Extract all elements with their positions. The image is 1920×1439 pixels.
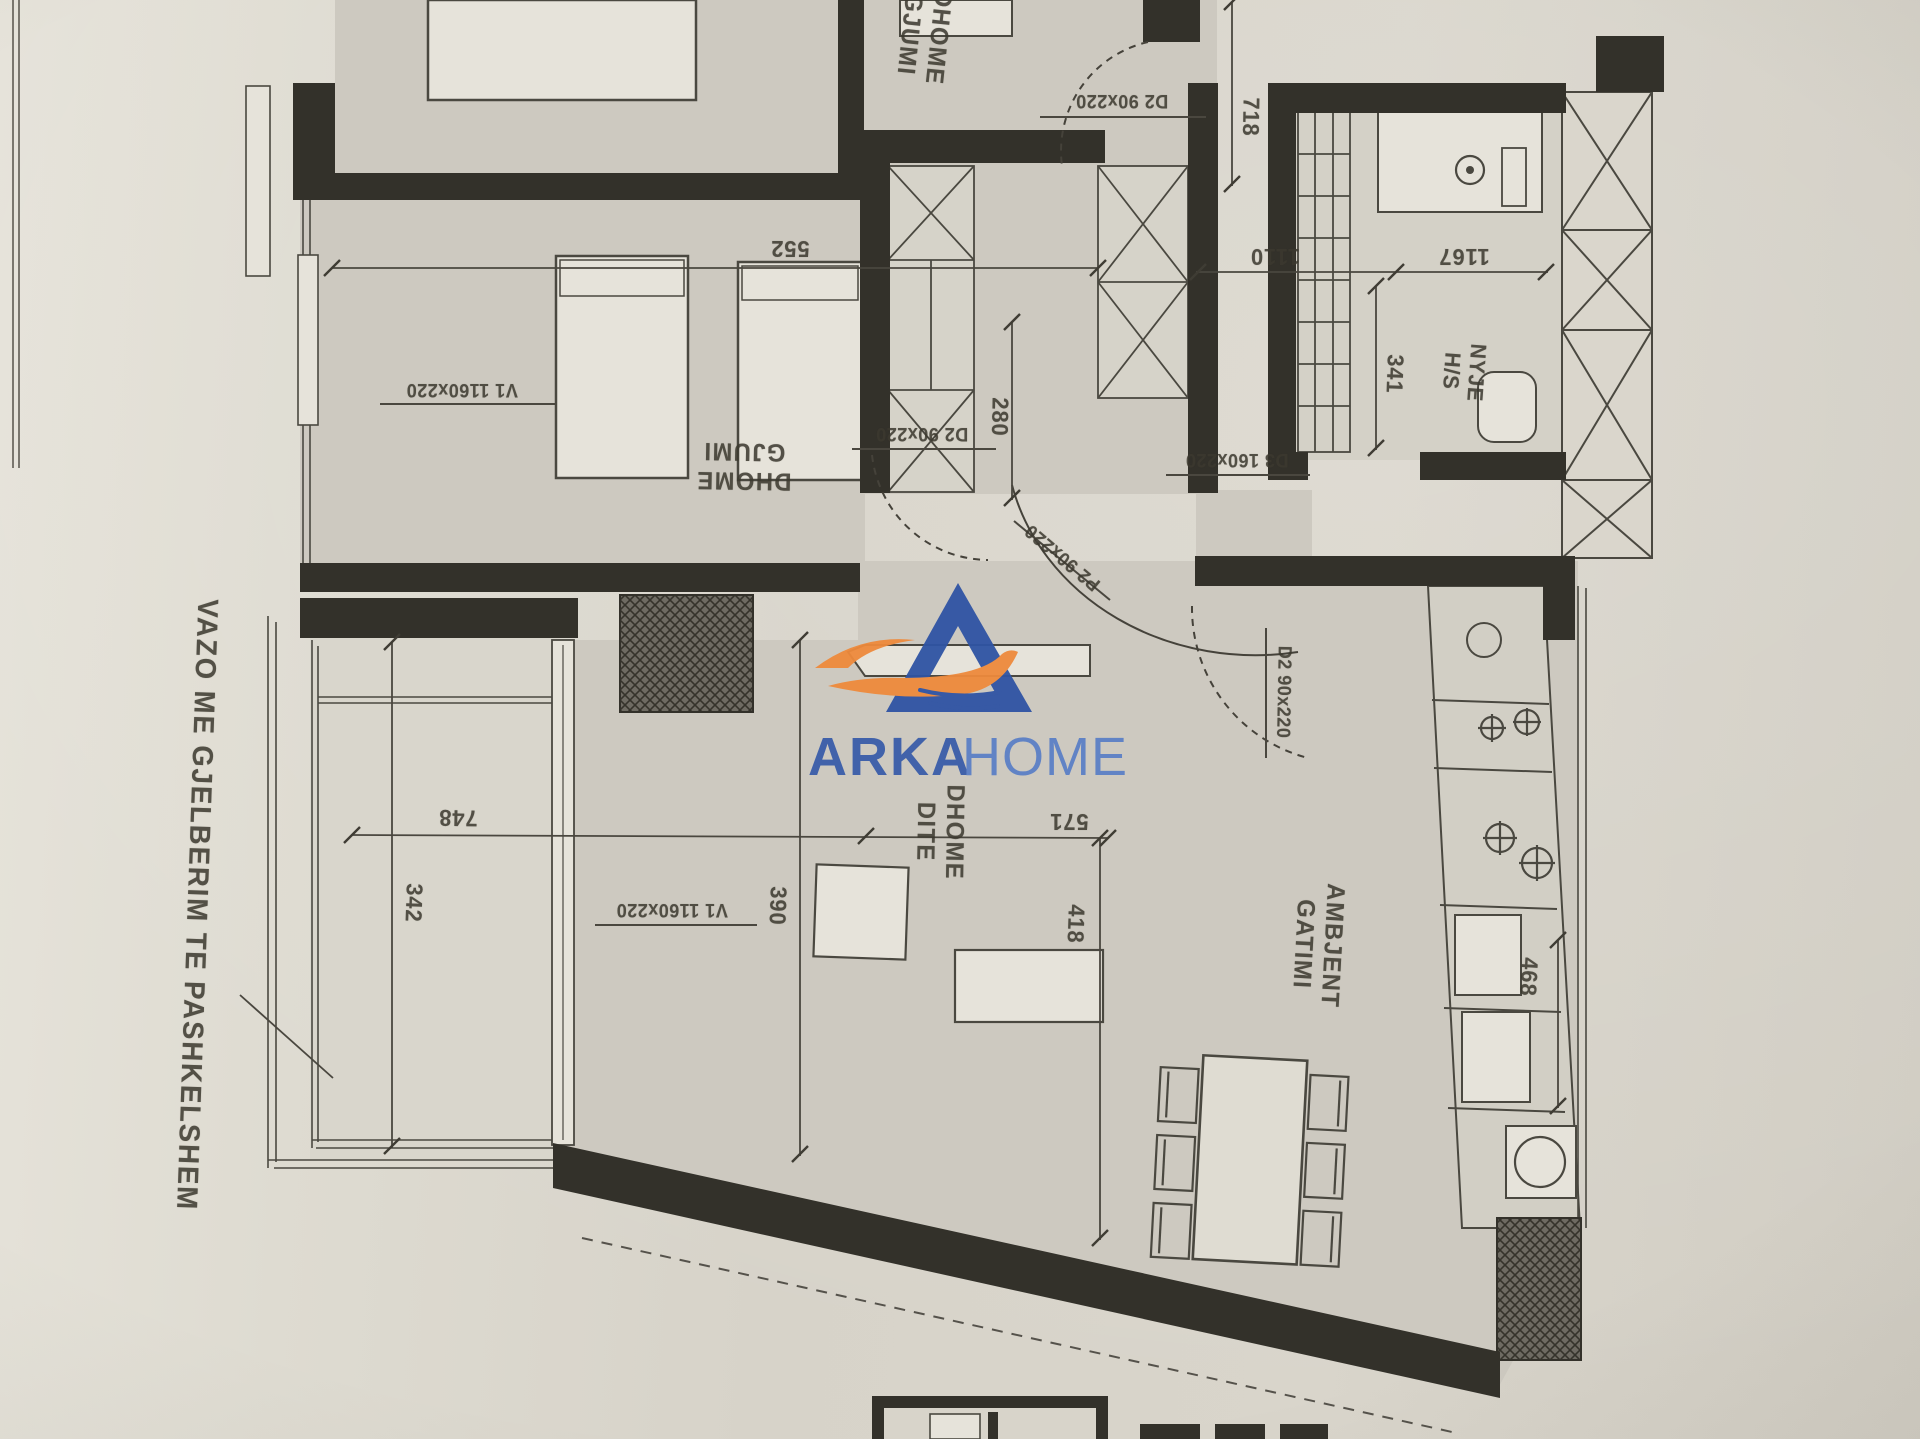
washbasin-icon <box>1378 112 1542 212</box>
dim-418: 418 <box>1062 904 1090 944</box>
window-topleft-icon <box>246 86 270 276</box>
thumbnail-plan-fragment <box>872 1396 1328 1439</box>
label-window-bedroom: V1 1160x220 <box>406 378 518 400</box>
dim-552: 552 <box>770 236 809 262</box>
room-label-bathroom: NYJE H/S <box>1437 341 1492 403</box>
brand-text-primary: ARKA <box>808 727 972 787</box>
boat-sail-icon <box>815 639 915 668</box>
sheet-margin-lines <box>13 0 19 468</box>
bed-left <box>556 256 688 478</box>
dim-341: 341 <box>1381 354 1409 394</box>
label-door-top: D2 90x220 <box>1076 89 1169 111</box>
appliance-icon <box>1455 915 1521 995</box>
room-label-kitchen: AMBJENT GATIMI <box>1286 881 1350 1009</box>
appliance-icon <box>1462 1012 1530 1102</box>
label-window-living: V1 1160x220 <box>616 898 728 920</box>
dim-342: 342 <box>400 883 428 923</box>
dim-1110: 1110 <box>1250 244 1300 270</box>
dim-390: 390 <box>764 886 792 926</box>
bed-topleft <box>428 0 696 100</box>
agency-watermark: ARKA HOME <box>770 560 1160 820</box>
dim-468: 468 <box>1515 957 1543 998</box>
dim-1167: 1167 <box>1438 244 1489 270</box>
dim-748: 748 <box>438 804 478 831</box>
dining-table-icon <box>1193 1055 1308 1264</box>
window-bedroom-icon <box>298 255 318 425</box>
floor-plan-photo: DHOME GJUMI DHOME GJUMI DHOME DITE AMBJE… <box>0 0 1920 1439</box>
room-label-bedroom-middle: DHOME GJUMI <box>696 436 793 495</box>
door-leaf <box>1143 0 1200 42</box>
closet-icon <box>1098 166 1188 398</box>
room-label-bedroom-top: DHOME GJUMI <box>890 0 957 87</box>
sofa-icon <box>955 950 1103 1022</box>
arkahome-logo-icon: ARKA HOME <box>770 560 1160 820</box>
brand-text-secondary: HOME <box>962 727 1128 787</box>
dim-280: 280 <box>986 397 1013 437</box>
dim-718: 718 <box>1237 97 1264 137</box>
coffee-table-icon <box>813 864 908 959</box>
label-door-entry: D3 160x220 <box>1185 448 1288 470</box>
label-door-bedroom: D2 90x220 <box>876 422 969 444</box>
label-door-kitchen: D2 90x220 <box>1271 646 1294 739</box>
